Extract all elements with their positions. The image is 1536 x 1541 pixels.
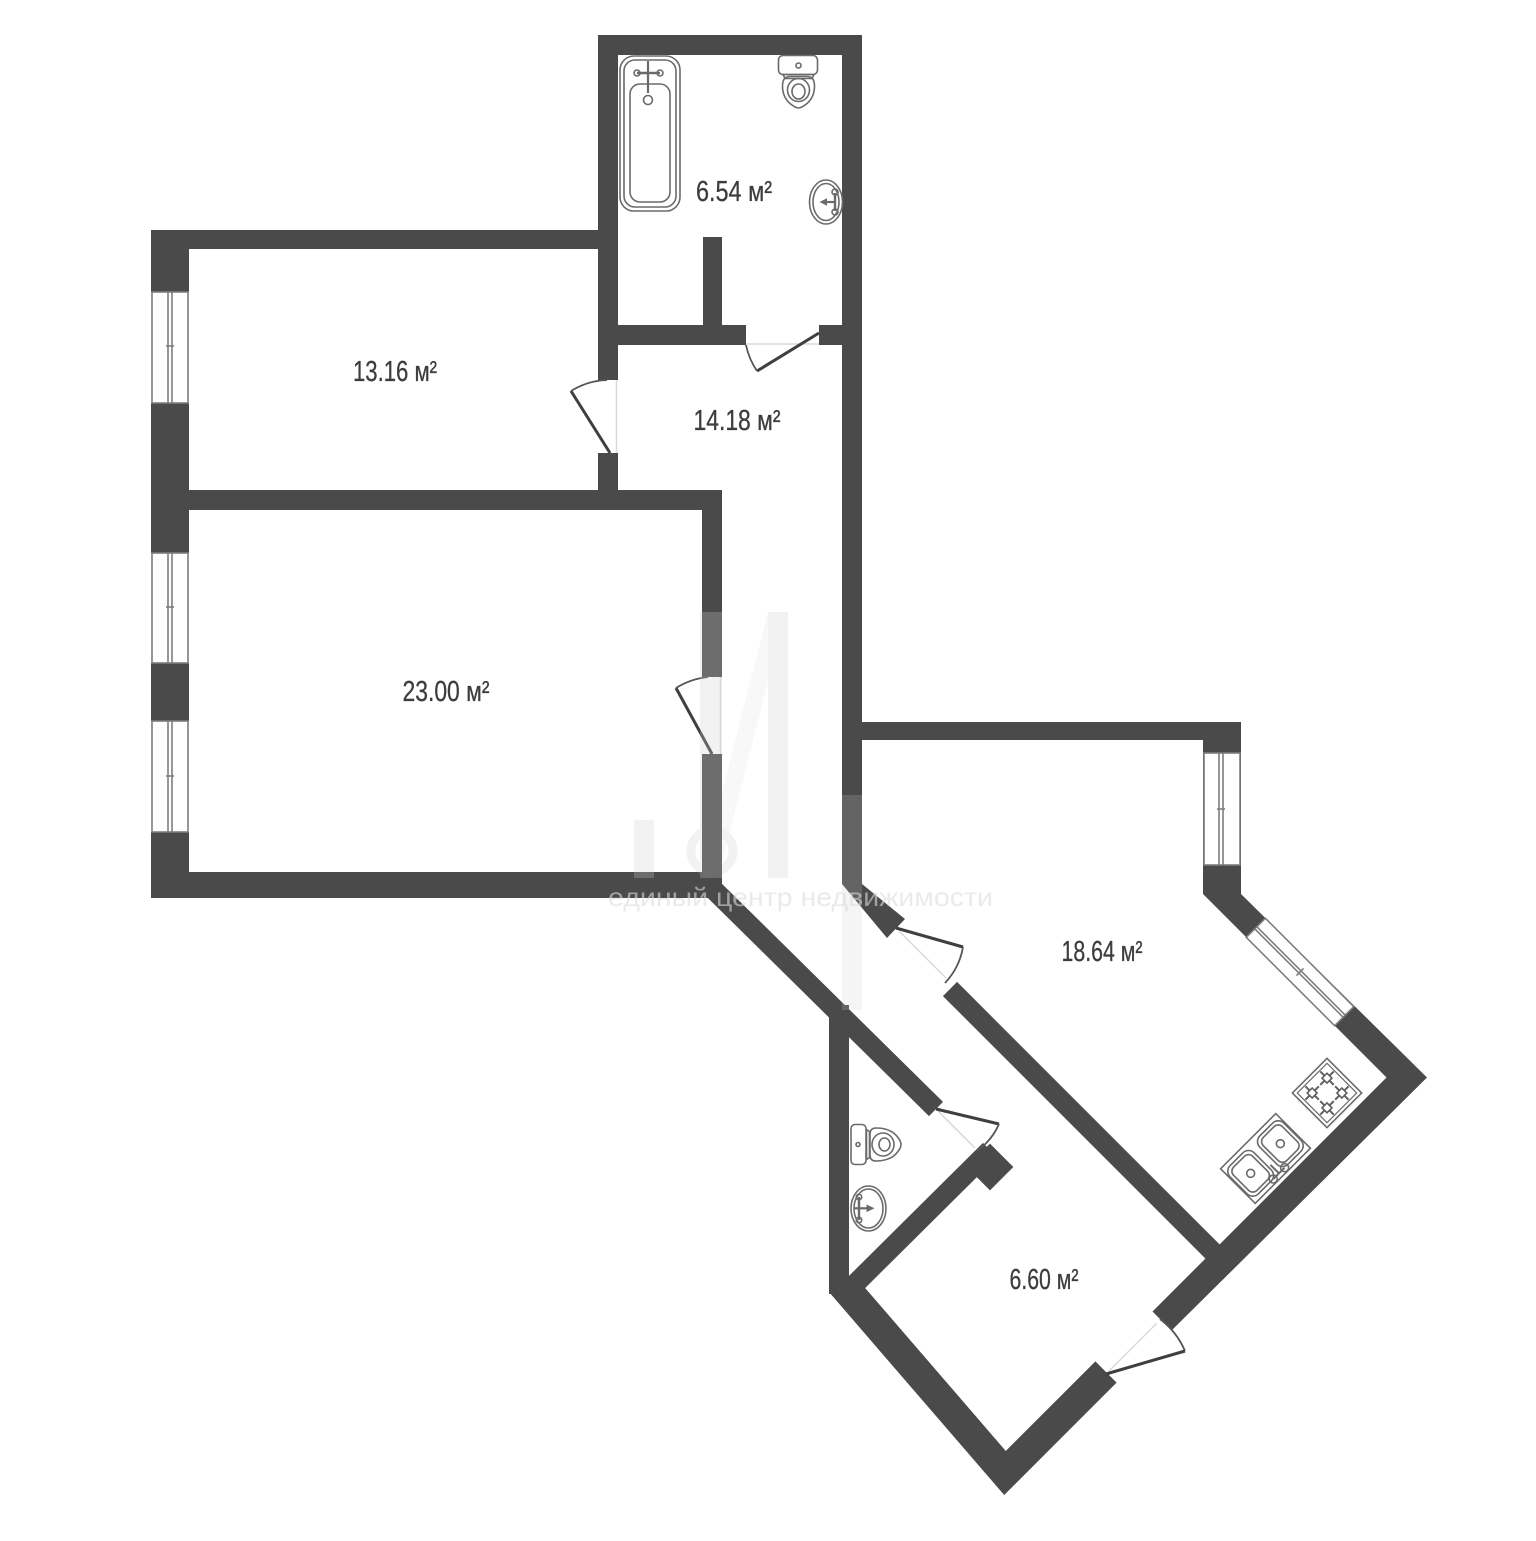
svg-text:единый центр недвижимости: единый центр недвижимости xyxy=(608,882,993,912)
svg-text:6.60 м²: 6.60 м² xyxy=(1010,1264,1079,1296)
svg-text:13.16 м²: 13.16 м² xyxy=(353,356,437,388)
svg-text:6.54 м²: 6.54 м² xyxy=(696,176,772,208)
svg-text:14.18 м²: 14.18 м² xyxy=(694,405,781,437)
svg-text:18.64 м²: 18.64 м² xyxy=(1062,936,1143,968)
svg-text:23.00 м²: 23.00 м² xyxy=(403,676,490,708)
